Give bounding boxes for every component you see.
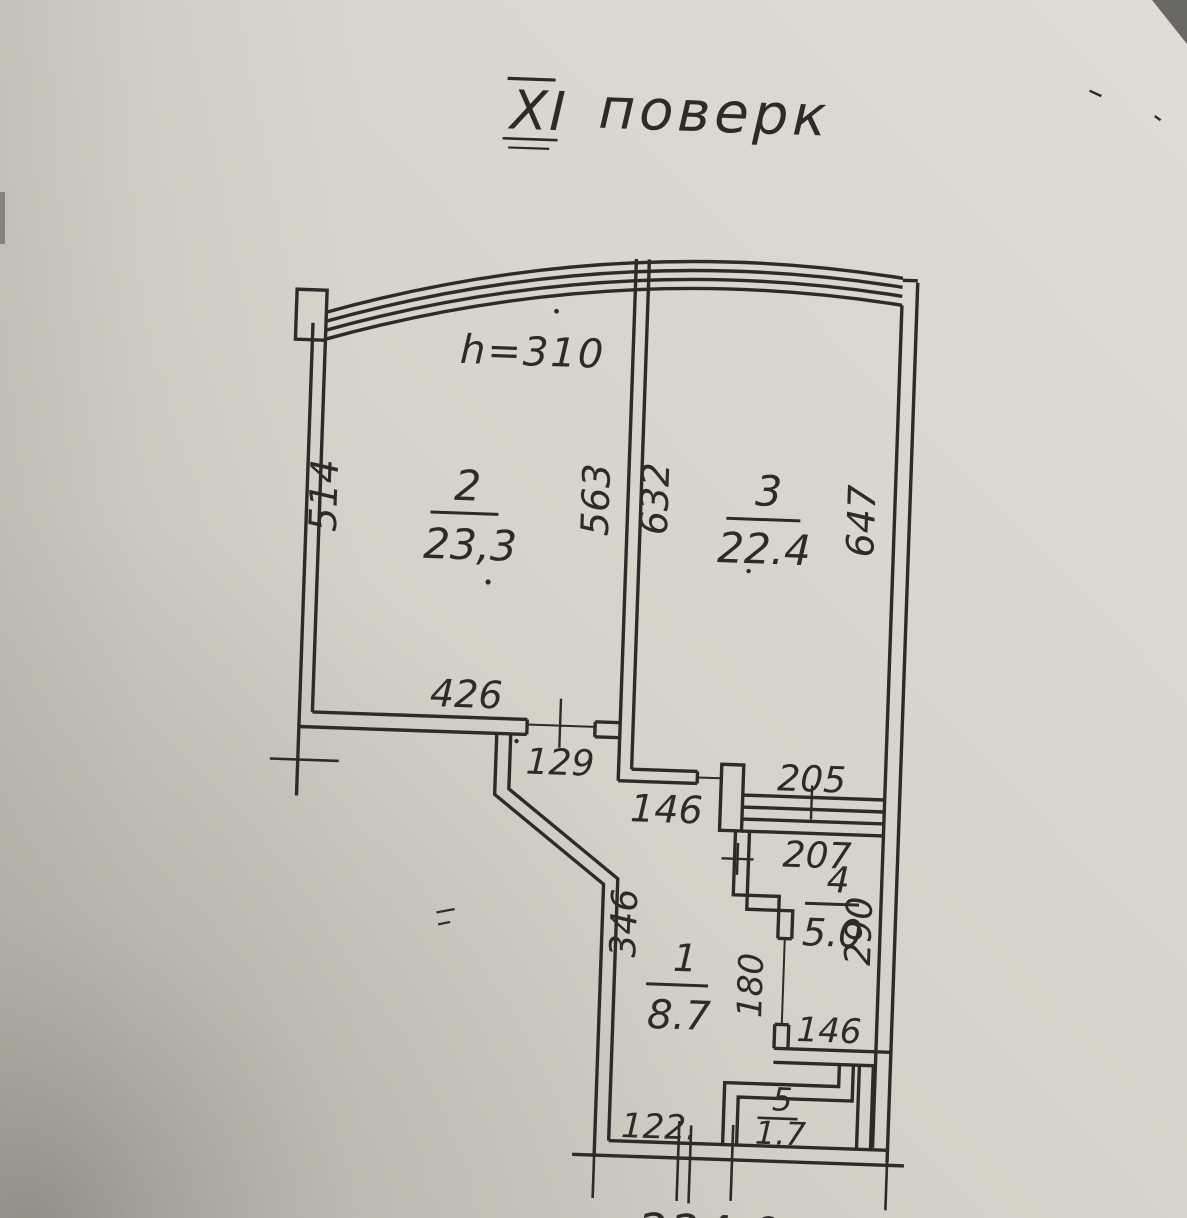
room3-number: 3 [755, 466, 783, 516]
floor-plan-svg: XI поверк h=310 2 23,3 3 22.4 1 8.7 4 5.… [0, 0, 1187, 1218]
dim-room3-width: 632 [632, 462, 679, 536]
title-floor-numeral: XI [506, 78, 568, 143]
door-opening-line [697, 777, 721, 778]
door-jamb [595, 722, 596, 737]
title-overbar [508, 78, 556, 80]
floor-plan-photo: XI поверк h=310 2 23,3 3 22.4 1 8.7 4 5.… [0, 0, 1187, 1218]
dim-hall-bottom-width: 122. [620, 1106, 697, 1149]
dimension-tick [559, 699, 561, 748]
paper-corner-shade [0, 0, 1187, 1218]
dim-room3-bottom-width: 205 [777, 758, 847, 801]
dim-room4-door-height: 180 [730, 952, 772, 1018]
wall-right-top-cap [903, 280, 918, 281]
wall-room2-bottom [595, 737, 620, 738]
room5-area: 1.7 [754, 1114, 807, 1154]
wall-hall-top [632, 769, 698, 771]
wall-room4-left [774, 1024, 775, 1048]
dim-room4-right-height: 290 [838, 896, 881, 966]
dim-hall-left-height: 346 [603, 888, 646, 958]
room3-area: 22.4 [717, 523, 812, 575]
wall-room2-bottom [595, 722, 620, 723]
room2-number: 2 [454, 461, 482, 511]
title-underbar [508, 147, 549, 148]
wall-room4-left [788, 1025, 789, 1049]
dim-room2-width: 563 [573, 463, 620, 537]
paper-edge-speck [0, 192, 5, 244]
title-floor-word: поверк [597, 77, 831, 150]
height-note: h=310 [459, 327, 606, 378]
dim-room4-top-width: 207 [782, 834, 852, 877]
dim-room2-door-width: 129 [525, 741, 595, 784]
room1-number: 1 [672, 936, 698, 981]
room1-area: 8.7 [646, 992, 712, 1040]
door-jamb [527, 719, 528, 734]
room5-number: 5 [772, 1080, 794, 1119]
room2-area: 23,3 [423, 519, 518, 571]
dim-hall-opening: 146 [629, 786, 703, 833]
dim-right-wall-upper: 647 [838, 484, 885, 558]
dim-left-wall-height: 514 [301, 458, 348, 532]
dim-room4-bottom-width: 146 [796, 1010, 862, 1052]
dim-room2-bottom-width: 426 [429, 671, 503, 718]
